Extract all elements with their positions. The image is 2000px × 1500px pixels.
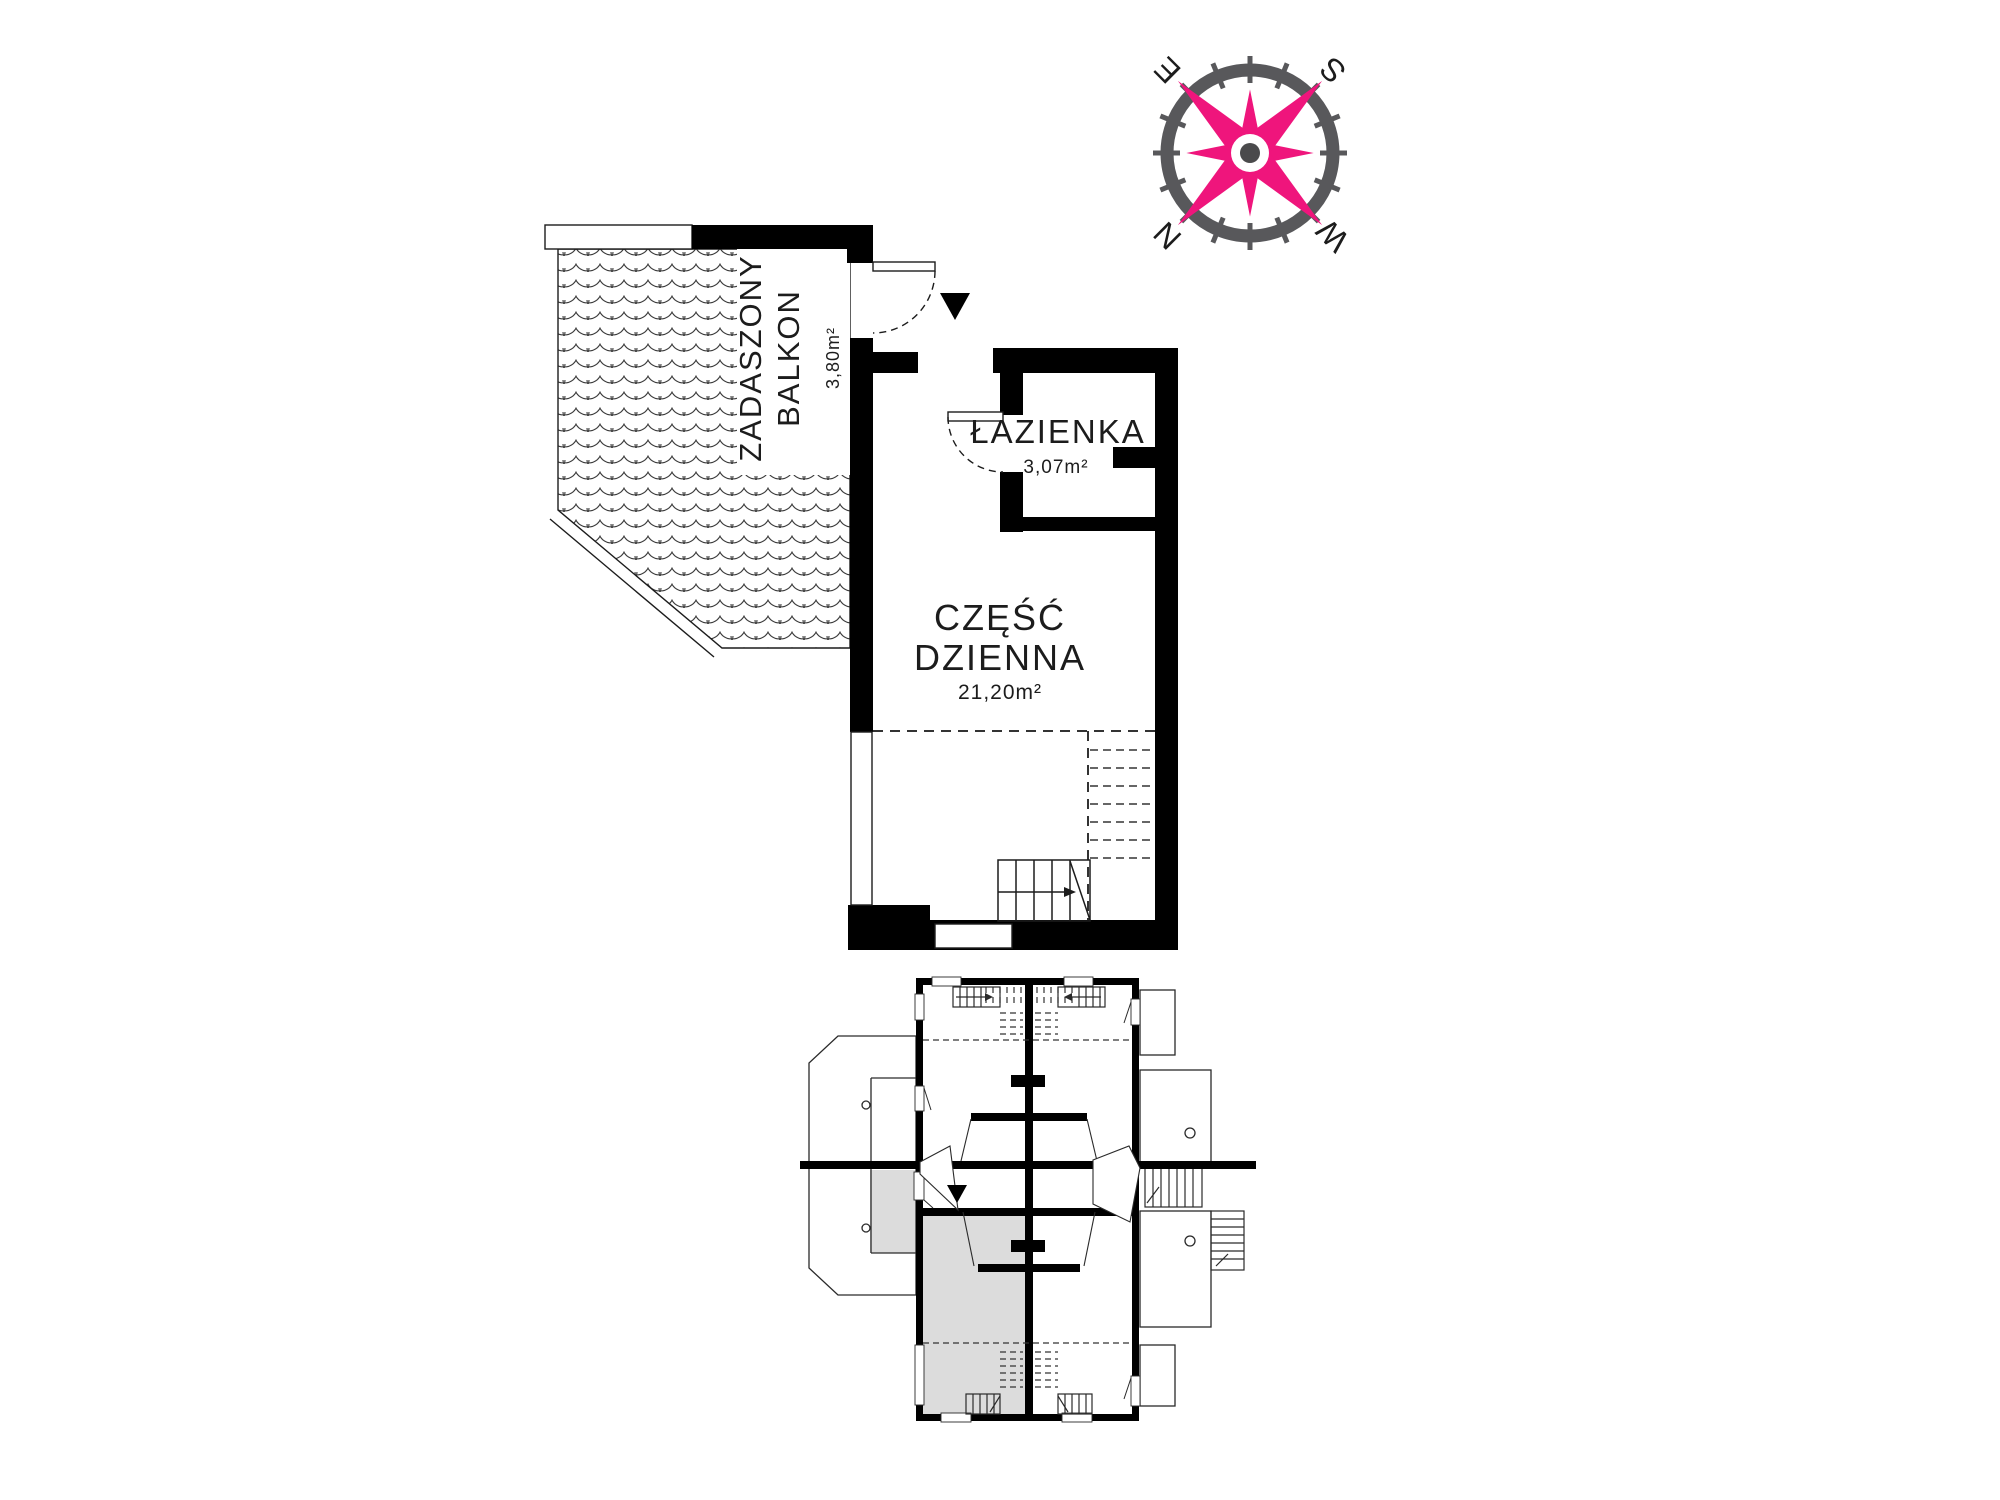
entrance-door-swing [873, 271, 935, 333]
wall-bottom-left-corner [848, 905, 930, 950]
locator-plan [800, 977, 1256, 1422]
floor-plan-page: ZADASZONY BALKON 3,80m² [0, 0, 2000, 1500]
living-room-label: CZĘŚĆ DZIENNA 21,20m² [914, 596, 1086, 704]
compass-rose-icon: N E S W [1064, 0, 1439, 342]
living-area: 21,20m² [958, 681, 1042, 704]
main-floor-plan: ZADASZONY BALKON 3,80m² [545, 225, 1178, 950]
wall-top-corner [847, 225, 873, 263]
bathroom-label: ŁAZIENKA 3,07m² [970, 413, 1146, 478]
stairs [998, 860, 1090, 921]
locator-walls [800, 978, 1256, 1421]
balcony-name-line1: ZADASZONY [733, 254, 768, 461]
window-left [851, 732, 872, 905]
entrance-door [873, 262, 935, 333]
wall-left [850, 338, 873, 732]
wall-bathroom-bottom [1000, 517, 1157, 531]
living-name-line1: CZĘŚĆ [934, 596, 1066, 638]
entrance-door-leaf [873, 262, 935, 271]
wall-bathroom-top [993, 348, 1178, 373]
stairs-dashed-treads [1090, 750, 1154, 858]
wall-vestibule-stub [873, 352, 918, 373]
window-bottom [935, 924, 1012, 948]
bathroom-name: ŁAZIENKA [970, 413, 1146, 450]
balcony-area: 3,80m² [823, 327, 843, 389]
floor-plan-drawing: ZADASZONY BALKON 3,80m² [0, 0, 2000, 1500]
balcony-name-line2: BALKON [771, 289, 806, 427]
bathroom-area: 3,07m² [1023, 457, 1088, 478]
locator-stair-arrow-left [985, 993, 993, 1001]
locator-highlight [870, 1170, 1025, 1414]
wall-bathroom-left-upper [1000, 373, 1023, 415]
wall-shower-stub [1113, 447, 1155, 468]
living-name-line2: DZIENNA [914, 637, 1086, 678]
wall-top-balcony [692, 225, 847, 249]
entrance-marker-icon [940, 293, 970, 320]
section-cut-line [800, 1161, 1256, 1169]
wall-right [1155, 348, 1178, 920]
roof-edge [545, 225, 692, 249]
locator-external-stairs [1145, 1168, 1244, 1270]
